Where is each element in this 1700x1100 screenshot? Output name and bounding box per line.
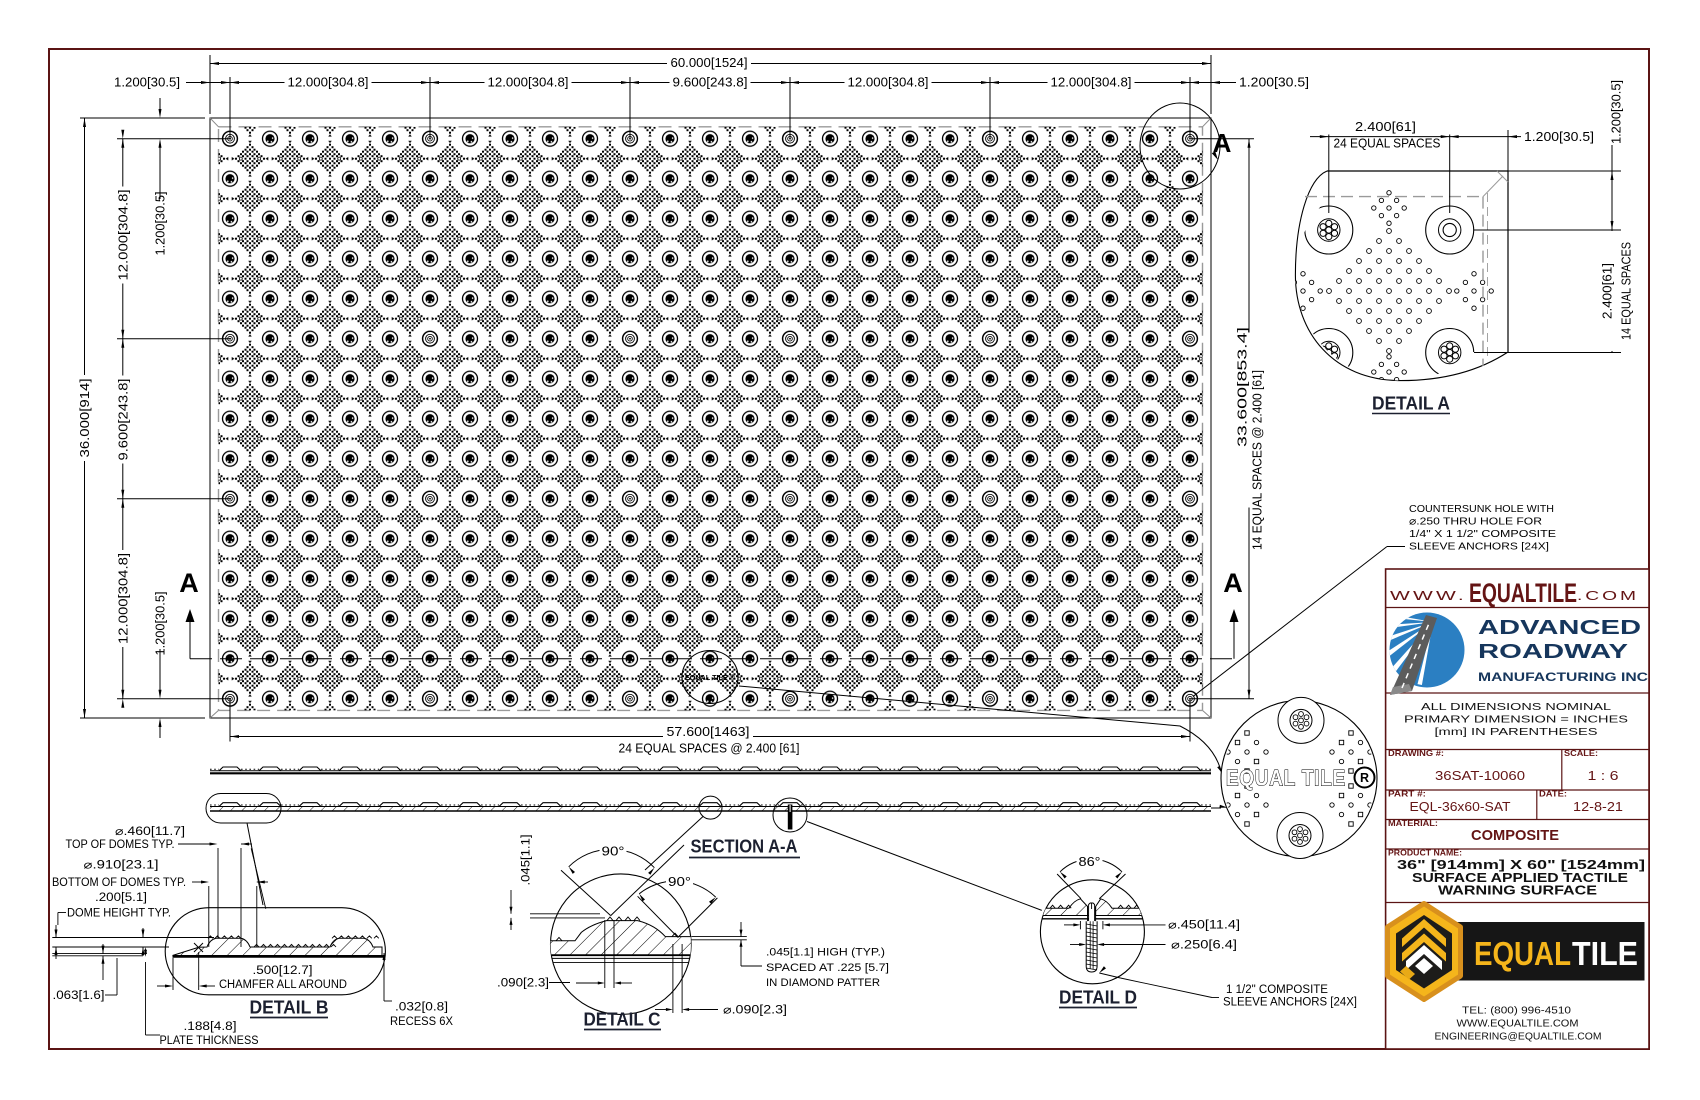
svg-text:RECESS 6X: RECESS 6X [390, 1016, 453, 1028]
svg-text:EQUAL TILE: EQUAL TILE [1226, 766, 1346, 791]
svg-text:33.600[853.4]: 33.600[853.4] [1236, 327, 1250, 447]
svg-text:TOP OF DOMES TYP.: TOP OF DOMES TYP. [66, 839, 175, 851]
svg-text:9.600[243.8]: 9.600[243.8] [673, 76, 748, 90]
svg-text:EQUAL TILE ®: EQUAL TILE ® [685, 674, 736, 682]
svg-text:DETAIL C: DETAIL C [584, 1010, 661, 1030]
svg-text:12.000[304.8]: 12.000[304.8] [116, 189, 130, 280]
svg-text:IN DIAMOND PATTER: IN DIAMOND PATTER [766, 977, 880, 989]
svg-text:ROADWAY: ROADWAY [1478, 640, 1628, 663]
svg-text:12.000[304.8]: 12.000[304.8] [848, 76, 929, 90]
svg-text:1/4" X 1 1/2" COMPOSITE: 1/4" X 1 1/2" COMPOSITE [1409, 528, 1556, 540]
svg-text:1 : 6: 1 : 6 [1588, 768, 1619, 783]
svg-text:⌀.910[23.1]: ⌀.910[23.1] [84, 860, 159, 872]
svg-text:14 EQUAL SPACES: 14 EQUAL SPACES [1620, 242, 1634, 340]
svg-text:1.200[30.5]: 1.200[30.5] [1524, 130, 1594, 144]
svg-text:ALL DIMENSIONS NOMINAL: ALL DIMENSIONS NOMINAL [1421, 702, 1612, 713]
svg-text:MATERIAL:: MATERIAL: [1388, 818, 1438, 828]
svg-text:COMPOSITE: COMPOSITE [1471, 827, 1559, 844]
svg-text:BOTTOM OF DOMES TYP.: BOTTOM OF DOMES TYP. [52, 877, 186, 889]
svg-text:.045[1.1] HIGH (TYP.): .045[1.1] HIGH (TYP.) [766, 947, 885, 959]
svg-text:DETAIL B: DETAIL B [250, 998, 329, 1018]
svg-text:SECTION A-A: SECTION A-A [691, 837, 798, 857]
svg-text:.045[1.1]: .045[1.1] [521, 835, 533, 886]
svg-text:12.000[304.8]: 12.000[304.8] [488, 76, 569, 90]
svg-text:⌀.250 THRU HOLE FOR: ⌀.250 THRU HOLE FOR [1409, 516, 1542, 528]
svg-text:⌀.250[6.4]: ⌀.250[6.4] [1171, 940, 1237, 952]
svg-text:.COM: .COM [1577, 588, 1639, 603]
svg-text:DETAIL A: DETAIL A [1372, 394, 1450, 414]
svg-text:DATE:: DATE: [1539, 789, 1567, 799]
svg-text:COUNTERSUNK HOLE WITH: COUNTERSUNK HOLE WITH [1409, 503, 1554, 515]
svg-text:24 EQUAL SPACES: 24 EQUAL SPACES [1334, 137, 1441, 151]
svg-text:SLEEVE ANCHORS [24X]: SLEEVE ANCHORS [24X] [1409, 541, 1549, 553]
svg-text:PRIMARY DIMENSION = INCHES: PRIMARY DIMENSION = INCHES [1404, 715, 1628, 726]
svg-text:2.400[61]: 2.400[61] [1355, 120, 1416, 134]
svg-text:.063[1.6]: .063[1.6] [53, 990, 105, 1002]
svg-text:1.200[30.5]: 1.200[30.5] [154, 192, 168, 256]
svg-text:1.200[30.5]: 1.200[30.5] [114, 76, 180, 90]
svg-text:SPACED AT .225 [5.7]: SPACED AT .225 [5.7] [766, 962, 889, 974]
svg-text:.188[4.8]: .188[4.8] [184, 1021, 237, 1033]
svg-text:2.400[61]: 2.400[61] [1601, 263, 1615, 319]
svg-text:TEL: (800) 996-4510: TEL: (800) 996-4510 [1462, 1005, 1571, 1017]
svg-text:12.000[304.8]: 12.000[304.8] [288, 76, 369, 90]
svg-text:90°: 90° [668, 875, 691, 889]
svg-text:CHAMFER ALL AROUND: CHAMFER ALL AROUND [219, 979, 347, 991]
svg-text:⌀.090[2.3]: ⌀.090[2.3] [723, 1005, 787, 1017]
svg-text:WWW.: WWW. [1390, 588, 1467, 603]
svg-text:1.200[30.5]: 1.200[30.5] [154, 592, 168, 656]
svg-text:DOME HEIGHT TYP.: DOME HEIGHT TYP. [67, 908, 171, 920]
svg-text:TILE: TILE [1572, 935, 1638, 972]
svg-text:R: R [1360, 771, 1369, 785]
svg-text:.032[0.8]: .032[0.8] [395, 1002, 448, 1014]
svg-text:12-8-21: 12-8-21 [1573, 799, 1623, 814]
svg-text:60.000[1524]: 60.000[1524] [671, 56, 748, 70]
svg-text:A: A [1223, 568, 1243, 598]
svg-text:14 EQUAL SPACES @ 2.400 [61]: 14 EQUAL SPACES @ 2.400 [61] [1251, 370, 1265, 550]
svg-text:12.000[304.8]: 12.000[304.8] [116, 553, 130, 644]
svg-text:12.000[304.8]: 12.000[304.8] [1051, 76, 1132, 90]
svg-text:⌀.450[11.4]: ⌀.450[11.4] [1168, 920, 1240, 932]
svg-text:DETAIL D: DETAIL D [1059, 988, 1137, 1008]
svg-text:EQUAL: EQUAL [1474, 935, 1571, 972]
svg-text:⌀.460[11.7]: ⌀.460[11.7] [115, 826, 185, 838]
svg-text:WARNING SURFACE: WARNING SURFACE [1438, 884, 1597, 898]
svg-text:WWW.EQUALTILE.COM: WWW.EQUALTILE.COM [1457, 1018, 1579, 1030]
svg-text:DRAWING #:: DRAWING #: [1388, 748, 1444, 758]
svg-text:36SAT-10060: 36SAT-10060 [1435, 768, 1525, 783]
svg-text:1.200[30.5]: 1.200[30.5] [1610, 80, 1624, 144]
svg-text:A: A [179, 568, 199, 598]
svg-text:PLATE THICKNESS: PLATE THICKNESS [160, 1035, 259, 1047]
svg-text:[mm] IN PARENTHESES: [mm] IN PARENTHESES [1435, 727, 1598, 738]
svg-text:57.600[1463]: 57.600[1463] [667, 725, 750, 739]
svg-text:EQUALTILE: EQUALTILE [1469, 578, 1577, 608]
svg-text:SLEEVE ANCHORS [24X]: SLEEVE ANCHORS [24X] [1223, 997, 1357, 1009]
svg-text:PART #:: PART #: [1388, 789, 1426, 799]
svg-text:36" [914mm] X 60" [1524mm]: 36" [914mm] X 60" [1524mm] [1397, 858, 1645, 872]
svg-text:9.600[243.8]: 9.600[243.8] [116, 379, 130, 461]
svg-text:SCALE:: SCALE: [1564, 748, 1598, 758]
svg-text:PRODUCT NAME:: PRODUCT NAME: [1388, 848, 1462, 858]
svg-text:.200[5.1]: .200[5.1] [95, 892, 147, 904]
svg-text:MANUFACTURING INC: MANUFACTURING INC [1478, 672, 1648, 684]
svg-text:ENGINEERING@EQUALTILE.COM: ENGINEERING@EQUALTILE.COM [1435, 1031, 1602, 1043]
svg-text:.500[12.7]: .500[12.7] [253, 965, 313, 977]
svg-text:86°: 86° [1079, 855, 1101, 869]
svg-text:1.200[30.5]: 1.200[30.5] [1239, 76, 1309, 90]
svg-text:EQL-36x60-SAT: EQL-36x60-SAT [1410, 799, 1511, 814]
svg-text:24 EQUAL SPACES @ 2.400 [61]: 24 EQUAL SPACES @ 2.400 [61] [619, 742, 800, 756]
svg-text:1 1/2" COMPOSITE: 1 1/2" COMPOSITE [1226, 984, 1328, 996]
svg-text:90°: 90° [602, 845, 625, 859]
svg-text:36.000[914]: 36.000[914] [78, 379, 92, 458]
svg-text:.090[2.3]: .090[2.3] [497, 978, 549, 990]
svg-text:ADVANCED: ADVANCED [1478, 616, 1641, 639]
